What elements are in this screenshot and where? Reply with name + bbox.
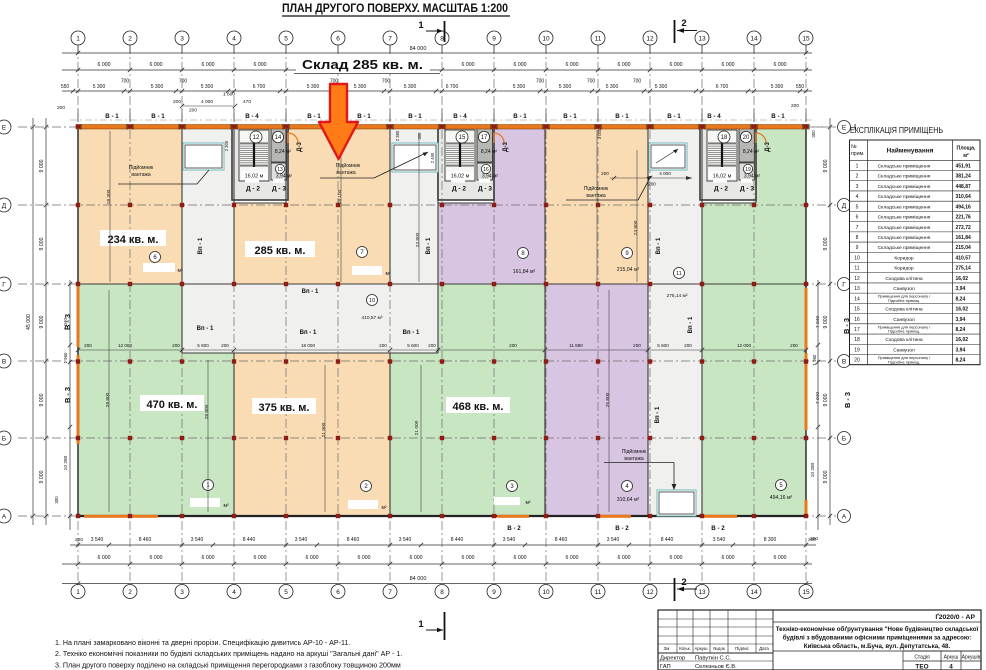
svg-text:6 000: 6 000 <box>98 555 111 561</box>
svg-text:5 300: 5 300 <box>655 84 668 90</box>
svg-text:В - 3: В - 3 <box>843 392 852 408</box>
svg-text:Найменування: Найменування <box>887 147 934 155</box>
svg-text:Зм.: Зм. <box>664 646 671 651</box>
svg-text:7 040: 7 040 <box>815 316 821 328</box>
svg-text:6 000: 6 000 <box>514 555 527 561</box>
svg-text:Підсобне приміщ.: Підсобне приміщ. <box>888 298 920 303</box>
svg-text:Складське приміщення: Складське приміщення <box>878 225 931 231</box>
svg-text:9 000: 9 000 <box>823 470 829 483</box>
svg-text:5: 5 <box>284 35 288 42</box>
svg-text:11: 11 <box>595 589 602 596</box>
svg-text:Вп - 1: Вп - 1 <box>198 237 204 254</box>
svg-text:6 700: 6 700 <box>446 84 459 90</box>
svg-text:1 960: 1 960 <box>812 354 817 366</box>
svg-text:11: 11 <box>676 271 682 277</box>
svg-text:Вп - 1: Вп - 1 <box>197 326 214 332</box>
svg-text:15: 15 <box>802 35 810 42</box>
svg-text:200: 200 <box>84 343 92 348</box>
svg-text:8,24: 8,24 <box>956 327 966 333</box>
svg-text:700: 700 <box>179 79 188 85</box>
svg-text:Г: Г <box>842 281 846 288</box>
svg-text:Складське приміщення: Складське приміщення <box>878 204 931 210</box>
svg-text:3,94 м²: 3,94 м² <box>276 174 293 180</box>
svg-text:прим.: прим. <box>851 151 865 157</box>
svg-text:8: 8 <box>440 35 444 42</box>
svg-text:200: 200 <box>189 108 197 114</box>
svg-text:18 300: 18 300 <box>106 189 112 204</box>
svg-text:м²: м² <box>381 505 386 511</box>
svg-text:21 900: 21 900 <box>321 422 327 437</box>
svg-text:В - 1: В - 1 <box>408 113 422 120</box>
svg-text:16,02 м: 16,02 м <box>245 174 264 180</box>
svg-text:10 280: 10 280 <box>63 455 69 470</box>
svg-text:8,24: 8,24 <box>956 296 966 302</box>
svg-text:84 000: 84 000 <box>410 46 427 52</box>
svg-text:200: 200 <box>509 343 517 348</box>
svg-text:В - 1: В - 1 <box>563 113 577 120</box>
svg-text:Підйомник: Підйомник <box>584 185 609 192</box>
svg-text:300: 300 <box>417 132 422 140</box>
svg-text:10: 10 <box>854 255 860 261</box>
svg-text:5 600: 5 600 <box>657 343 669 348</box>
svg-text:23 800: 23 800 <box>415 232 421 247</box>
svg-text:6 000: 6 000 <box>358 555 371 561</box>
svg-text:5: 5 <box>856 204 859 210</box>
svg-text:12 000: 12 000 <box>118 343 132 348</box>
svg-text:Ґ2020/0 - АР: Ґ2020/0 - АР <box>935 612 975 621</box>
svg-text:В - 1: В - 1 <box>771 113 785 120</box>
svg-text:3 540: 3 540 <box>191 537 204 543</box>
svg-text:234 кв. м.: 234 кв. м. <box>108 234 159 246</box>
svg-text:13: 13 <box>277 167 283 173</box>
svg-text:11: 11 <box>854 266 859 272</box>
svg-text:5 600: 5 600 <box>407 343 419 348</box>
svg-text:8 460: 8 460 <box>555 537 568 543</box>
svg-text:7: 7 <box>856 225 859 231</box>
svg-text:8 460: 8 460 <box>347 537 360 543</box>
svg-text:В: В <box>842 358 846 365</box>
svg-text:3,94: 3,94 <box>956 347 966 353</box>
svg-text:А: А <box>842 513 847 520</box>
svg-text:700: 700 <box>633 79 642 85</box>
svg-text:Сходова клітина: Сходова клітина <box>885 307 923 313</box>
svg-text:6 000: 6 000 <box>774 555 787 561</box>
svg-text:Вп - 1: Вп - 1 <box>688 316 694 333</box>
svg-text:14: 14 <box>854 296 860 302</box>
svg-text:6 000: 6 000 <box>566 62 579 68</box>
svg-text:1: 1 <box>418 20 424 31</box>
svg-text:Санвузол: Санвузол <box>893 286 915 292</box>
svg-text:4: 4 <box>232 35 236 42</box>
svg-text:В - 1: В - 1 <box>307 113 321 120</box>
svg-text:5: 5 <box>284 589 288 596</box>
svg-text:Д: Д <box>2 202 7 209</box>
svg-text:6 000: 6 000 <box>98 62 111 68</box>
svg-text:Д - 3: Д - 3 <box>272 186 286 193</box>
svg-text:6 000: 6 000 <box>670 62 683 68</box>
svg-text:5 300: 5 300 <box>354 84 367 90</box>
svg-text:4 000: 4 000 <box>659 171 671 176</box>
svg-text:вантажа: вантажа <box>624 456 644 462</box>
svg-text:9 000: 9 000 <box>823 237 829 250</box>
svg-text:будівлі з вбудованими офісними: будівлі з вбудованими офісними приміщенн… <box>783 635 972 642</box>
svg-text:В: В <box>2 358 6 365</box>
svg-text:275,14: 275,14 <box>956 266 972 272</box>
svg-text:Техніко-економічне обґрунтуван: Техніко-економічне обґрунтування "Нове б… <box>776 626 979 633</box>
svg-text:Підйомник: Підйомник <box>129 164 154 171</box>
svg-text:12: 12 <box>253 135 260 141</box>
svg-text:18 100: 18 100 <box>337 189 343 204</box>
svg-text:7: 7 <box>388 35 392 42</box>
svg-text:4 000: 4 000 <box>201 99 213 105</box>
svg-text:9 000: 9 000 <box>39 393 45 406</box>
svg-text:28 800: 28 800 <box>204 404 210 419</box>
svg-text:13: 13 <box>854 286 860 292</box>
svg-text:410,57 м²: 410,57 м² <box>362 315 383 321</box>
svg-text:45 000: 45 000 <box>26 314 32 330</box>
svg-text:13: 13 <box>698 589 706 596</box>
svg-text:м²: м² <box>223 503 228 509</box>
svg-text:10 280: 10 280 <box>810 462 816 477</box>
svg-text:13: 13 <box>698 35 706 42</box>
svg-text:Підпис: Підпис <box>735 646 750 651</box>
svg-text:8 440: 8 440 <box>243 537 256 543</box>
svg-text:Коридор: Коридор <box>894 255 914 261</box>
svg-text:6 000: 6 000 <box>618 62 631 68</box>
svg-text:8 440: 8 440 <box>451 537 464 543</box>
svg-text:3,94: 3,94 <box>956 286 966 292</box>
svg-text:700: 700 <box>587 79 596 85</box>
svg-text:Д - 2: Д - 2 <box>714 186 728 193</box>
svg-text:6 000: 6 000 <box>254 62 267 68</box>
svg-text:375 кв. м.: 375 кв. м. <box>259 402 310 414</box>
svg-text:1. На плані замарковано віко: 1. На плані замарковано віконні та дверн… <box>55 639 350 647</box>
svg-text:Складське приміщення: Складське приміщення <box>878 235 931 241</box>
svg-text:5 300: 5 300 <box>771 84 784 90</box>
svg-text:вантажа: вантажа <box>336 170 356 176</box>
svg-text:Д-3: Д-3 <box>765 142 771 152</box>
svg-text:550: 550 <box>796 84 805 90</box>
svg-text:200: 200 <box>221 343 229 348</box>
svg-text:1: 1 <box>76 35 80 42</box>
svg-text:310,64 м²: 310,64 м² <box>617 497 640 503</box>
svg-text:А: А <box>2 513 7 520</box>
svg-text:5 300: 5 300 <box>307 84 320 90</box>
svg-text:20: 20 <box>854 358 860 364</box>
svg-text:3 540: 3 540 <box>91 537 104 543</box>
svg-text:10: 10 <box>542 35 550 42</box>
svg-text:200: 200 <box>790 343 798 348</box>
svg-text:9 000: 9 000 <box>39 237 45 250</box>
svg-text:200: 200 <box>379 343 387 348</box>
svg-text:6 000: 6 000 <box>306 555 319 561</box>
svg-text:2: 2 <box>128 35 132 42</box>
svg-text:6 000: 6 000 <box>462 555 475 561</box>
svg-text:Складське приміщення: Складське приміщення <box>878 184 931 190</box>
svg-text:9 000: 9 000 <box>39 315 45 328</box>
svg-text:6 000: 6 000 <box>150 62 163 68</box>
svg-text:Сходова клітина: Сходова клітина <box>885 276 923 282</box>
svg-text:Підйомник: Підйомник <box>336 162 361 169</box>
svg-text:Коридор: Коридор <box>894 266 914 272</box>
svg-text:23 800: 23 800 <box>633 220 639 235</box>
svg-text:6 000: 6 000 <box>618 555 631 561</box>
svg-text:11 880: 11 880 <box>569 343 583 348</box>
svg-text:5 300: 5 300 <box>404 84 417 90</box>
svg-text:12: 12 <box>646 589 654 596</box>
svg-text:8,24: 8,24 <box>956 358 966 364</box>
svg-text:6 000: 6 000 <box>722 62 735 68</box>
svg-text:В - 2: В - 2 <box>711 525 725 532</box>
svg-text:Санвузол: Санвузол <box>893 317 915 323</box>
svg-text:4: 4 <box>856 194 859 200</box>
svg-text:3,94: 3,94 <box>956 317 966 323</box>
svg-text:Підйомник: Підйомник <box>622 448 647 455</box>
svg-text:3 540: 3 540 <box>713 537 726 543</box>
svg-text:6: 6 <box>856 215 859 221</box>
svg-text:3 540: 3 540 <box>607 537 620 543</box>
svg-text:№док: №док <box>713 646 725 651</box>
svg-text:200: 200 <box>428 343 436 348</box>
svg-text:ГАП: ГАП <box>660 664 671 670</box>
svg-text:494,16 м²: 494,16 м² <box>770 495 793 501</box>
svg-text:470: 470 <box>243 99 251 105</box>
svg-text:15: 15 <box>459 135 466 141</box>
svg-text:6 000: 6 000 <box>722 555 735 561</box>
svg-text:17: 17 <box>481 135 488 141</box>
svg-text:8: 8 <box>440 589 444 596</box>
svg-text:9 000: 9 000 <box>823 315 829 328</box>
svg-text:6: 6 <box>336 35 340 42</box>
svg-text:6 000: 6 000 <box>774 62 787 68</box>
svg-text:15: 15 <box>854 307 860 313</box>
svg-text:Санвузол: Санвузол <box>893 347 915 353</box>
svg-text:161,84 м²: 161,84 м² <box>513 269 536 275</box>
svg-text:84 000: 84 000 <box>410 576 427 582</box>
svg-text:9: 9 <box>856 245 859 251</box>
svg-text:16,02 м: 16,02 м <box>713 174 732 180</box>
svg-text:700: 700 <box>536 79 545 85</box>
svg-text:вантажа: вантажа <box>586 193 606 199</box>
svg-text:5 300: 5 300 <box>606 84 619 90</box>
svg-text:Складське приміщення: Складське приміщення <box>878 194 931 200</box>
svg-text:12 000: 12 000 <box>737 343 751 348</box>
svg-text:8,24 м²: 8,24 м² <box>481 149 498 155</box>
svg-text:6 000: 6 000 <box>462 62 475 68</box>
svg-text:8 440: 8 440 <box>661 537 674 543</box>
svg-text:В - 4: В - 4 <box>707 113 721 120</box>
svg-text:8 300: 8 300 <box>764 537 777 543</box>
svg-text:5 600: 5 600 <box>197 343 209 348</box>
svg-text:2. Техніко економічні показн: 2. Техніко економічні показники по будів… <box>55 650 402 658</box>
svg-text:12: 12 <box>854 276 860 282</box>
svg-text:Вп - 1: Вп - 1 <box>655 406 661 423</box>
svg-text:5 300: 5 300 <box>559 84 572 90</box>
svg-text:Е: Е <box>2 124 7 131</box>
svg-text:200: 200 <box>601 171 609 176</box>
svg-text:В - 3: В - 3 <box>63 387 72 403</box>
svg-text:Складське приміщення: Складське приміщення <box>878 245 931 251</box>
svg-text:14: 14 <box>750 35 758 42</box>
svg-text:В - 2: В - 2 <box>507 525 521 532</box>
svg-text:14: 14 <box>750 589 758 596</box>
svg-text:Павуткін С.С.: Павуткін С.С. <box>695 656 732 662</box>
svg-text:В - 4: В - 4 <box>245 113 259 120</box>
svg-text:Площа,: Площа, <box>957 146 976 152</box>
svg-text:6: 6 <box>336 589 340 596</box>
svg-text:Склад 285 кв. м.: Склад 285 кв. м. <box>302 58 423 72</box>
svg-text:6 000: 6 000 <box>254 555 267 561</box>
svg-text:5 300: 5 300 <box>513 84 526 90</box>
svg-text:9: 9 <box>492 589 496 596</box>
svg-text:2: 2 <box>856 174 859 180</box>
svg-text:Кільк.: Кільк. <box>679 646 691 651</box>
svg-text:9 000: 9 000 <box>823 159 829 172</box>
svg-text:Директор: Директор <box>660 656 685 662</box>
svg-text:6 000: 6 000 <box>670 555 683 561</box>
svg-text:В - 1: В - 1 <box>105 113 119 120</box>
svg-text:Підсобне приміщ.: Підсобне приміщ. <box>888 359 920 364</box>
svg-text:1: 1 <box>418 619 424 630</box>
svg-text:Аркуш: Аркуш <box>694 646 708 651</box>
svg-text:Складське приміщення: Складське приміщення <box>878 163 931 169</box>
svg-text:Д - 3: Д - 3 <box>478 186 492 193</box>
svg-text:2: 2 <box>128 589 132 596</box>
svg-text:8,24 м²: 8,24 м² <box>275 149 292 155</box>
svg-text:381,24: 381,24 <box>956 174 972 180</box>
svg-text:215,04 м²: 215,04 м² <box>617 267 640 273</box>
svg-text:1: 1 <box>76 589 80 596</box>
svg-text:17: 17 <box>854 327 860 333</box>
svg-text:ПЛАН ДРУГОГО ПОВЕРХУ. МАСШТАБ: ПЛАН ДРУГОГО ПОВЕРХУ. МАСШТАБ 1:200 <box>282 3 508 15</box>
svg-text:300: 300 <box>54 496 59 504</box>
svg-text:3 000: 3 000 <box>597 128 602 139</box>
svg-text:468 кв. м.: 468 кв. м. <box>453 401 504 413</box>
svg-text:19: 19 <box>745 167 751 173</box>
svg-text:8: 8 <box>856 235 859 241</box>
svg-text:200: 200 <box>633 343 641 348</box>
svg-text:11: 11 <box>595 35 602 42</box>
svg-text:Д-3: Д-3 <box>503 142 509 152</box>
svg-text:2: 2 <box>681 18 686 29</box>
svg-text:Сходова клітина: Сходова клітина <box>885 337 923 343</box>
svg-text:1 960: 1 960 <box>63 352 68 364</box>
svg-text:215,04: 215,04 <box>956 245 972 251</box>
svg-text:2 380: 2 380 <box>395 130 400 141</box>
svg-text:16: 16 <box>854 317 860 323</box>
svg-text:3 540: 3 540 <box>399 537 412 543</box>
svg-text:275,14 м²: 275,14 м² <box>667 293 688 299</box>
svg-text:6 000: 6 000 <box>202 555 215 561</box>
svg-text:5 300: 5 300 <box>201 84 214 90</box>
svg-text:Д - 3: Д - 3 <box>740 186 754 193</box>
svg-text:700: 700 <box>382 79 391 85</box>
svg-text:Вп - 1: Вп - 1 <box>300 330 317 336</box>
svg-text:Аркуш: Аркуш <box>944 655 959 661</box>
svg-text:3 540: 3 540 <box>503 537 516 543</box>
svg-text:700: 700 <box>121 79 130 85</box>
svg-text:200: 200 <box>791 103 799 109</box>
svg-text:м²: м² <box>963 153 969 159</box>
svg-text:18: 18 <box>721 135 728 141</box>
svg-text:Г: Г <box>2 281 6 288</box>
svg-text:9 000: 9 000 <box>823 393 829 406</box>
svg-text:В - 1: В - 1 <box>357 113 371 120</box>
svg-text:1 600: 1 600 <box>223 92 235 98</box>
svg-text:18 000: 18 000 <box>301 343 315 348</box>
svg-text:№: № <box>851 144 857 150</box>
svg-text:16: 16 <box>483 167 489 173</box>
svg-text:В - 1: В - 1 <box>513 113 527 120</box>
svg-text:161,84: 161,84 <box>956 235 972 241</box>
svg-text:Вп - 1: Вп - 1 <box>426 237 432 254</box>
svg-text:200: 200 <box>57 105 65 111</box>
svg-text:Вп - 1: Вп - 1 <box>302 289 319 295</box>
svg-text:6 000: 6 000 <box>514 62 527 68</box>
svg-text:4: 4 <box>232 589 236 596</box>
svg-text:18: 18 <box>854 337 860 343</box>
svg-text:Вп - 1: Вп - 1 <box>656 237 662 254</box>
svg-text:2: 2 <box>681 577 686 588</box>
svg-text:В - 2: В - 2 <box>615 525 629 532</box>
svg-text:10: 10 <box>542 589 550 596</box>
svg-text:Б: Б <box>842 435 846 442</box>
svg-text:10: 10 <box>369 298 375 304</box>
svg-text:4: 4 <box>949 664 953 670</box>
svg-text:7: 7 <box>388 589 392 596</box>
svg-text:3: 3 <box>180 589 184 596</box>
svg-text:9 000: 9 000 <box>39 159 45 172</box>
svg-text:6 700: 6 700 <box>716 84 729 90</box>
svg-text:2 300: 2 300 <box>224 140 229 151</box>
svg-text:1: 1 <box>856 163 859 169</box>
svg-text:м²: м² <box>525 500 530 506</box>
svg-text:14: 14 <box>275 135 282 141</box>
svg-text:25 800: 25 800 <box>605 392 611 407</box>
svg-text:470 кв. м.: 470 кв. м. <box>147 399 198 411</box>
svg-text:6 000: 6 000 <box>150 555 163 561</box>
svg-text:7 040: 7 040 <box>63 318 69 330</box>
svg-text:Е: Е <box>842 124 847 131</box>
svg-text:6 000: 6 000 <box>202 62 215 68</box>
svg-text:3. План другого поверху поді: 3. План другого поверху поділено на скла… <box>55 662 401 670</box>
svg-text:3,94 м²: 3,94 м² <box>744 174 761 180</box>
svg-text:Дата: Дата <box>759 646 769 651</box>
svg-text:8,24 м²: 8,24 м² <box>743 149 760 155</box>
svg-text:Селезньов Є.В.: Селезньов Є.В. <box>695 664 737 670</box>
svg-text:16,02: 16,02 <box>956 276 969 282</box>
svg-text:448,87: 448,87 <box>956 184 972 190</box>
svg-text:310,64: 310,64 <box>956 194 972 200</box>
svg-text:3 540: 3 540 <box>295 537 308 543</box>
svg-text:ЕКСПЛІКАЦІЯ ПРИМІЩЕНЬ: ЕКСПЛІКАЦІЯ ПРИМІЩЕНЬ <box>850 126 943 135</box>
svg-text:2 480: 2 480 <box>430 152 435 163</box>
svg-text:Д - 2: Д - 2 <box>452 186 466 193</box>
svg-text:16,02: 16,02 <box>956 307 969 313</box>
svg-text:3,94 м²: 3,94 м² <box>482 174 499 180</box>
svg-text:7 040: 7 040 <box>815 392 821 404</box>
svg-text:ТЕО: ТЕО <box>915 664 928 670</box>
svg-text:21 000: 21 000 <box>414 420 420 435</box>
svg-text:200: 200 <box>808 537 816 542</box>
svg-text:5 300: 5 300 <box>151 84 164 90</box>
svg-text:285 кв. м.: 285 кв. м. <box>255 245 306 257</box>
svg-text:5 300: 5 300 <box>93 84 106 90</box>
svg-text:м²: м² <box>385 271 390 277</box>
svg-text:200: 200 <box>173 99 181 105</box>
svg-text:15: 15 <box>802 589 810 596</box>
svg-text:Вп - 1: Вп - 1 <box>403 330 420 336</box>
